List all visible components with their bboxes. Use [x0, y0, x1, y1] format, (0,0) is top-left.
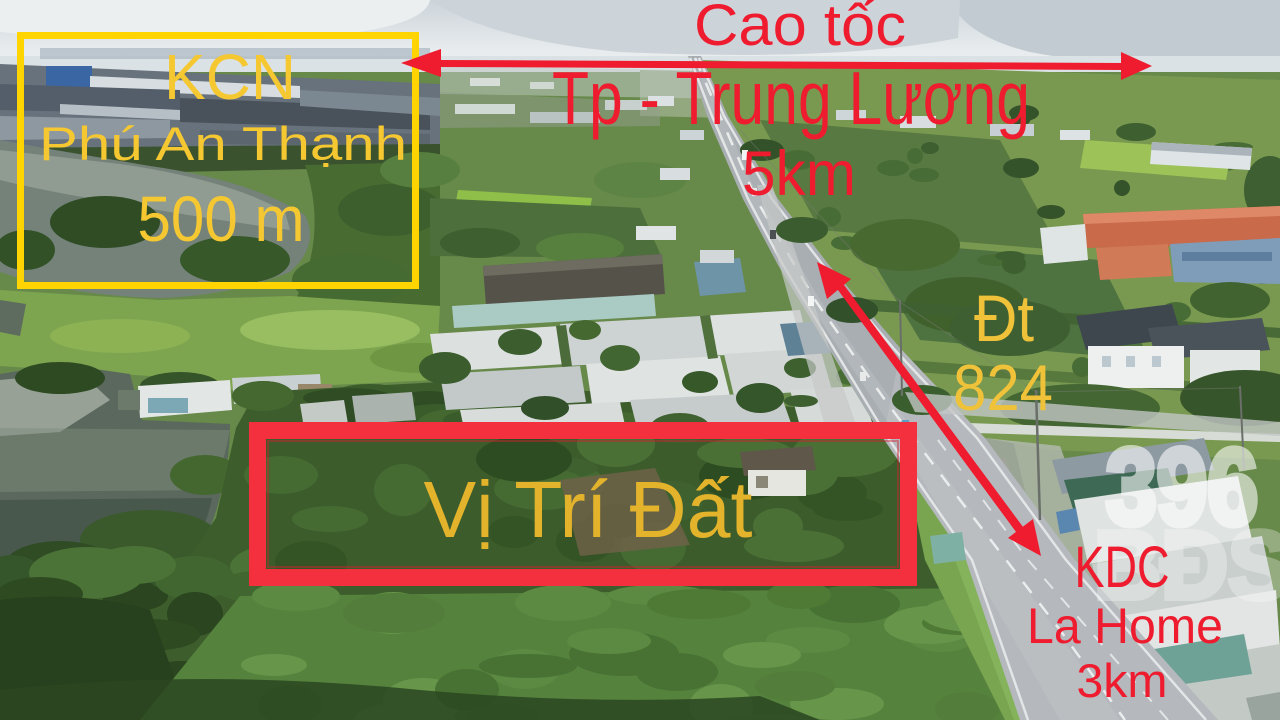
svg-text:824: 824: [953, 351, 1053, 424]
svg-text:Tp - Trung Lương: Tp - Trung Lương: [552, 56, 1030, 140]
svg-text:KCN: KCN: [164, 41, 296, 113]
svg-text:Vị Trí Đất: Vị Trí Đất: [424, 465, 753, 554]
svg-text:Cao tốc: Cao tốc: [694, 0, 906, 58]
svg-text:500 m: 500 m: [138, 183, 305, 255]
svg-text:Đt: Đt: [974, 281, 1034, 355]
svg-text:La Home: La Home: [1027, 598, 1223, 654]
svg-text:3km: 3km: [1077, 654, 1168, 707]
svg-text:5km: 5km: [742, 139, 856, 209]
svg-text:Phú An Thạnh: Phú An Thạnh: [39, 117, 407, 170]
svg-text:KDC: KDC: [1075, 535, 1170, 600]
